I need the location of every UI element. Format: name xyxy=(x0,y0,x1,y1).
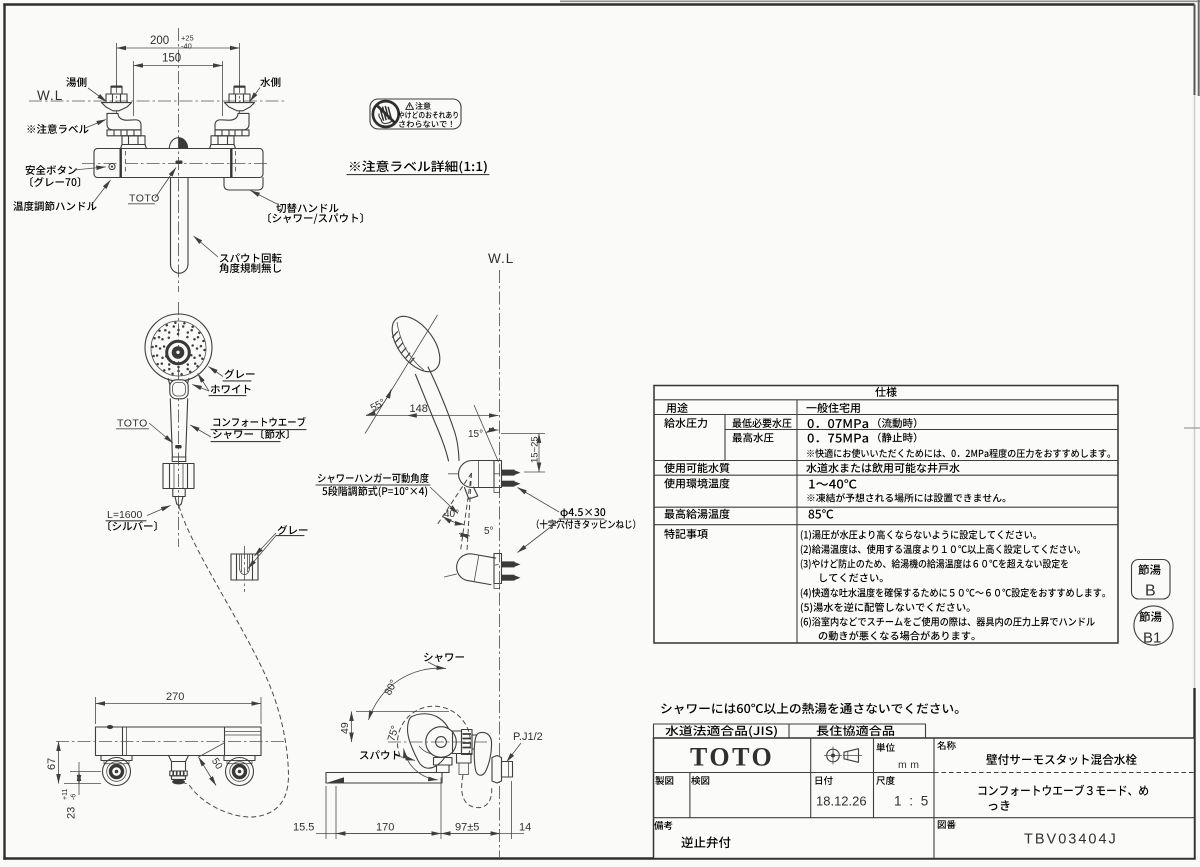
svg-text:TOTO: TOTO xyxy=(129,193,160,205)
svg-text:W.L: W.L xyxy=(488,251,514,266)
svg-text:15°: 15° xyxy=(468,429,483,440)
svg-text:5°: 5° xyxy=(484,526,494,537)
svg-text:67: 67 xyxy=(46,758,58,770)
svg-text:40°: 40° xyxy=(444,509,459,520)
svg-text:270: 270 xyxy=(166,691,184,703)
svg-text:L=1600: L=1600 xyxy=(107,509,142,521)
svg-text:P.J1/2: P.J1/2 xyxy=(513,731,543,743)
svg-text:49: 49 xyxy=(339,722,351,734)
svg-text:TOTO: TOTO xyxy=(690,743,774,772)
svg-text:14: 14 xyxy=(519,822,531,834)
svg-text:97±5: 97±5 xyxy=(455,822,479,834)
svg-text:150: 150 xyxy=(162,53,181,65)
svg-text:B1: B1 xyxy=(1143,630,1161,647)
svg-text:B: B xyxy=(1145,583,1156,600)
svg-text:170: 170 xyxy=(376,822,394,834)
svg-text:15~25: 15~25 xyxy=(530,436,541,463)
svg-text:mm: mm xyxy=(898,759,923,771)
svg-text:+11: +11 xyxy=(62,789,69,800)
svg-text:23: 23 xyxy=(66,807,78,819)
svg-text:W.L: W.L xyxy=(37,88,63,103)
svg-text:TBV03404J: TBV03404J xyxy=(1024,832,1118,848)
svg-text:-6: -6 xyxy=(71,794,78,800)
svg-text:-40: -40 xyxy=(181,42,192,51)
svg-text:TOTO: TOTO xyxy=(117,418,148,430)
svg-text:1 : 5: 1 : 5 xyxy=(894,794,930,809)
svg-text:148: 148 xyxy=(410,403,428,415)
svg-text:15.5: 15.5 xyxy=(293,822,314,834)
svg-text:200: 200 xyxy=(150,35,169,47)
svg-text:18.12.26: 18.12.26 xyxy=(816,794,867,809)
